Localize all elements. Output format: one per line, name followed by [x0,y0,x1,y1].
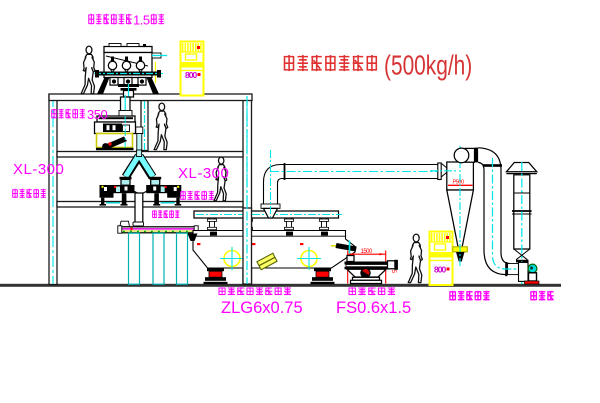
svg-text:1.5: 1.5 [133,13,150,28]
svg-text:FS0.6x1.5: FS0.6x1.5 [336,299,411,317]
svg-text:350: 350 [87,107,107,122]
svg-text:XL-300: XL-300 [13,161,64,178]
svg-text:800: 800 [434,265,446,275]
svg-text:(500kg/h): (500kg/h) [384,51,472,81]
svg-text:XL-300: XL-300 [178,165,229,182]
svg-text:P500: P500 [453,180,465,186]
svg-text:ZLG6x0.75: ZLG6x0.75 [221,299,303,317]
svg-text:800: 800 [185,70,197,80]
